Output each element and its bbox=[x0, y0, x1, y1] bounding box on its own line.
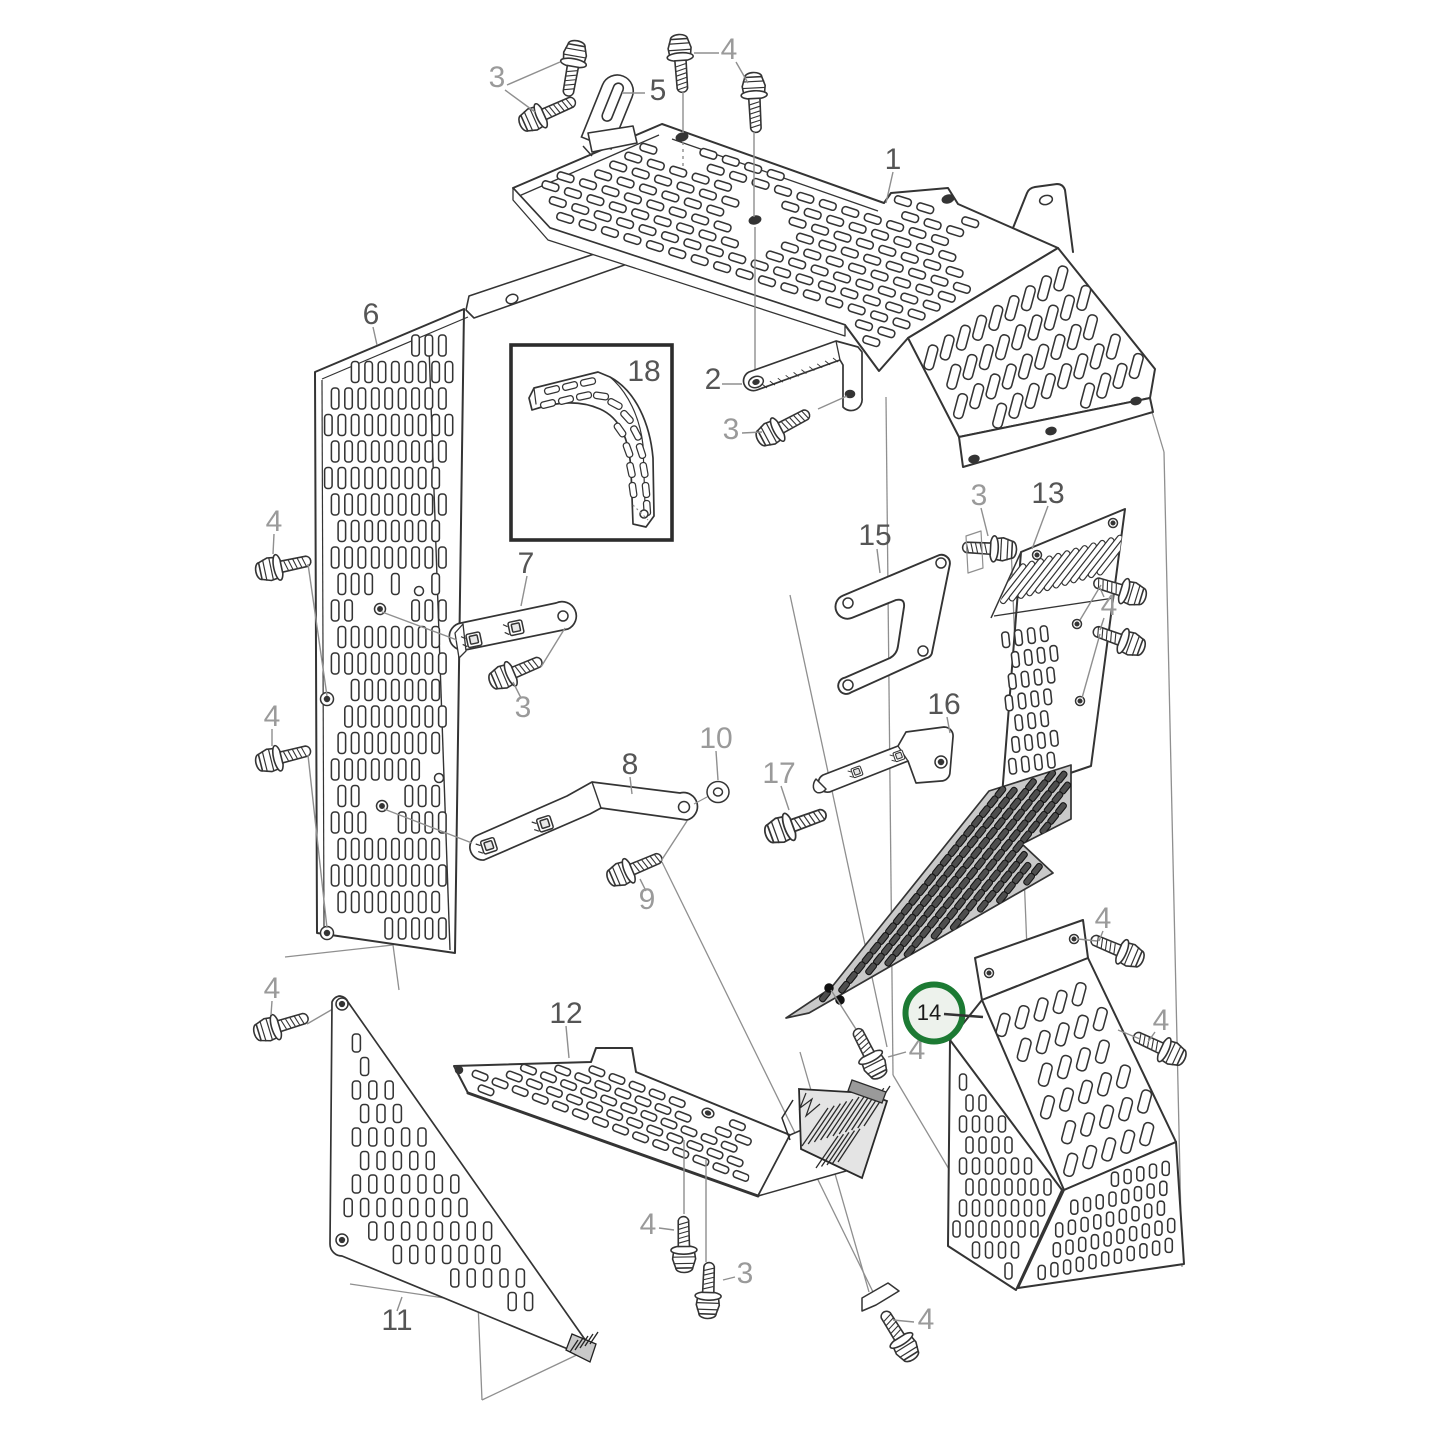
svg-text:4: 4 bbox=[266, 505, 283, 538]
svg-text:3: 3 bbox=[723, 413, 740, 446]
svg-text:8: 8 bbox=[622, 748, 639, 781]
svg-text:17: 17 bbox=[762, 757, 795, 790]
svg-text:14: 14 bbox=[917, 1000, 941, 1025]
svg-text:3: 3 bbox=[737, 1257, 754, 1290]
svg-text:13: 13 bbox=[1031, 477, 1064, 510]
svg-text:3: 3 bbox=[971, 479, 988, 512]
svg-text:16: 16 bbox=[927, 688, 960, 721]
svg-text:9: 9 bbox=[639, 883, 656, 916]
svg-text:3: 3 bbox=[515, 691, 532, 724]
svg-text:4: 4 bbox=[264, 972, 281, 1005]
svg-text:12: 12 bbox=[549, 997, 582, 1030]
svg-text:2: 2 bbox=[705, 363, 722, 396]
svg-text:3: 3 bbox=[489, 61, 506, 94]
svg-text:4: 4 bbox=[1153, 1004, 1170, 1037]
svg-text:15: 15 bbox=[858, 519, 891, 552]
svg-text:6: 6 bbox=[363, 298, 380, 331]
svg-text:4: 4 bbox=[264, 700, 281, 733]
svg-text:10: 10 bbox=[699, 722, 732, 755]
svg-text:4: 4 bbox=[1095, 902, 1112, 935]
svg-text:4: 4 bbox=[640, 1208, 657, 1241]
svg-text:18: 18 bbox=[627, 355, 660, 388]
svg-text:1: 1 bbox=[885, 143, 902, 176]
svg-text:5: 5 bbox=[650, 74, 667, 107]
svg-text:7: 7 bbox=[518, 547, 535, 580]
svg-text:4: 4 bbox=[918, 1303, 935, 1336]
svg-text:11: 11 bbox=[381, 1304, 412, 1337]
svg-text:4: 4 bbox=[721, 33, 738, 66]
svg-text:4: 4 bbox=[1101, 589, 1118, 622]
